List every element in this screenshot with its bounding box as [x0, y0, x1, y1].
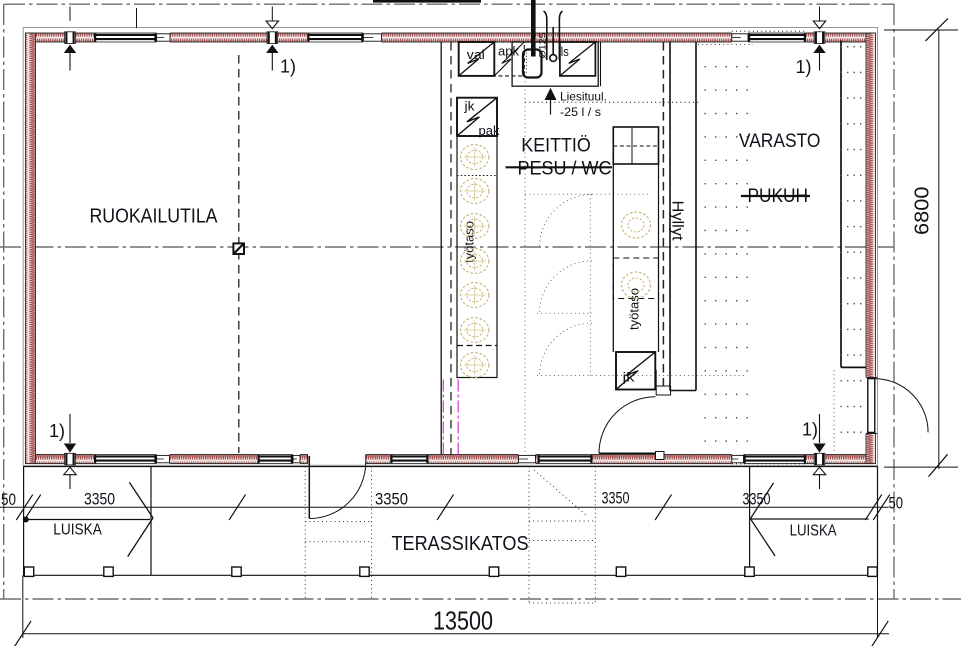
svg-text:Liesituul.: Liesituul. [560, 89, 607, 103]
svg-text:LUISKA: LUISKA [790, 523, 838, 540]
svg-text:1): 1) [49, 420, 65, 441]
svg-text:RUOKAILUTILA: RUOKAILUTILA [90, 205, 218, 228]
svg-text:3350: 3350 [84, 491, 115, 509]
svg-text:-25 l / s: -25 l / s [560, 105, 601, 119]
svg-text:13500: 13500 [433, 608, 493, 636]
svg-text:työtaso: työtaso [627, 288, 642, 330]
svg-text:ls: ls [561, 44, 569, 59]
svg-text:1): 1) [802, 419, 818, 440]
svg-text:3350: 3350 [602, 489, 630, 507]
svg-text:jk: jk [463, 99, 475, 114]
svg-text:val: val [467, 47, 485, 62]
svg-text:LUISKA: LUISKA [53, 522, 102, 539]
svg-text:50: 50 [1, 491, 16, 509]
svg-text:50: 50 [889, 495, 904, 513]
svg-text:KEITTIÖ: KEITTIÖ [521, 134, 591, 156]
svg-text:VARASTO: VARASTO [739, 131, 821, 152]
svg-text:1): 1) [280, 56, 296, 77]
svg-text:3350: 3350 [743, 491, 771, 509]
svg-text:TERASSIKATOS: TERASSIKATOS [392, 532, 529, 555]
svg-text:apk: apk [498, 44, 519, 59]
svg-text:6800: 6800 [911, 187, 934, 236]
svg-text:jk: jk [621, 370, 635, 385]
svg-text:1): 1) [796, 56, 812, 77]
svg-text:Hyllyt: Hyllyt [669, 201, 686, 242]
svg-text:3350: 3350 [375, 491, 408, 509]
